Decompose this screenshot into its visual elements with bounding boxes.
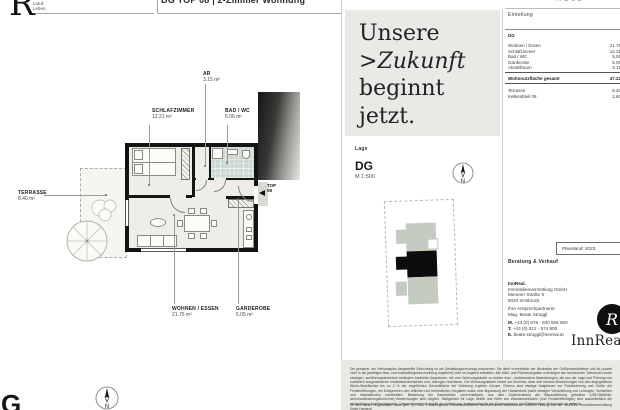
wall-bottom-a — [125, 248, 141, 252]
wall-bedroom-bottom-a — [129, 195, 170, 198]
chair — [200, 208, 207, 214]
chair — [177, 220, 183, 227]
table-rule-3 — [505, 83, 620, 84]
room-label-schlafzimmer: SCHLAFZIMMER 12.21 m² — [152, 108, 194, 120]
compass-icon-bottom: N — [93, 384, 121, 410]
svg-text:N: N — [461, 179, 465, 185]
shower — [212, 148, 223, 159]
wall-bedroom-ar — [192, 147, 195, 197]
chair — [188, 233, 195, 239]
divider-middle — [341, 0, 342, 360]
leader-terrasse — [44, 195, 106, 196]
page-title: DG TOP 08 | 2-Zimmer Wohnung — [161, 0, 339, 5]
slogan-panel: Unsere >Zukunft beginnt jetzt. — [345, 10, 500, 136]
siteplan-boundary — [384, 199, 458, 327]
disclaimer-band: Die gesamte, am Verkaufsplan dargestellt… — [341, 360, 620, 410]
svg-text:N: N — [105, 404, 109, 410]
shrub-icon — [90, 198, 120, 224]
contact-mobile: M. +43 (0) 676 - 840 505 660 — [508, 320, 568, 325]
pillow — [134, 164, 143, 174]
wall-hall-c — [226, 178, 254, 180]
lage-heading: Lage — [355, 146, 368, 152]
wardrobe-bedroom — [181, 148, 190, 180]
innreal-logo-icon: R — [597, 304, 620, 334]
disclaimer-paragraph-2: Es wird darauf hingewiesen, dass gem. § … — [350, 403, 612, 410]
table-total-row: Wohnnutzfläche gesamt47.22 — [508, 76, 620, 82]
expose-page: R Land. Leben. DG TOP 08 | 2-Zimmer Wohn… — [0, 0, 620, 410]
disclaimer-paragraph-1: Die gesamte, am Verkaufsplan dargestellt… — [350, 367, 612, 406]
stove — [246, 235, 252, 240]
table-row: Abstellraum3.15 — [508, 65, 620, 71]
coffee-table — [150, 218, 166, 227]
innreal-wordmark: InnReal — [571, 333, 620, 349]
wall-right-lower — [254, 204, 258, 252]
slogan-text: Unsere >Zukunft beginnt jetzt. — [359, 20, 466, 130]
titlebar-left-border — [157, 0, 158, 14]
wall-bottom-b — [186, 248, 258, 252]
brand-tagline: Land. Leben. — [33, 1, 47, 11]
planstand-text: Planstand: 2023 — [562, 246, 595, 251]
leader-garderobe — [238, 200, 239, 304]
planstand-box: Planstand: 2023 — [556, 242, 620, 255]
tree-icon — [64, 218, 110, 264]
room-label-ar: AR 3.15 m² — [203, 71, 220, 83]
chair — [200, 233, 207, 239]
lage-floor: DG — [355, 160, 373, 173]
entry-label: TOP 08 — [267, 183, 276, 193]
einteilung-heading: Einteilung — [508, 12, 533, 18]
siteplan-building-gray-bottom — [407, 276, 438, 304]
leader-bad — [227, 125, 228, 163]
titlebar-bottom-border — [157, 13, 341, 14]
wall-right-upper — [254, 143, 258, 186]
siteplan-building-gray-top-annex — [396, 229, 407, 243]
bed-divider — [132, 162, 176, 163]
chair — [211, 220, 217, 227]
contact-city: 6020 Innsbruck — [508, 298, 539, 303]
sales-heading: Beratung & Verkauf — [508, 259, 558, 265]
table-row: Kellerabteil 082.60 — [508, 94, 620, 100]
entry-arrow-icon — [259, 190, 265, 196]
lage-scale: M 1:500 — [355, 174, 375, 180]
slogan-line4: jetzt. — [359, 103, 466, 131]
compass-icon-lage: N — [450, 160, 476, 186]
siteplan-building-highlighted-annex — [396, 256, 408, 269]
terrace-door — [125, 200, 129, 226]
room-label-terrasse: TERRASSE 8.40 m² — [18, 190, 47, 202]
room-label-bad: BAD / WC 5.06 m² — [225, 108, 250, 120]
wall-left-upper — [125, 143, 129, 200]
leader-schlafzimmer — [149, 125, 150, 185]
chair — [188, 208, 195, 214]
dining-table — [184, 215, 210, 232]
siteplan-building-gray-bottom-annex — [396, 282, 407, 296]
brand-tagline-line2: Leben. — [33, 6, 47, 11]
stove — [246, 227, 252, 232]
contact-phone: T. +43 (0) 512 - 574 800 — [508, 326, 557, 331]
slogan-line1: Unsere — [359, 20, 466, 48]
pillow — [134, 150, 143, 160]
slogan-line3: beginnt — [359, 75, 466, 103]
adjacent-building-cut — [258, 92, 300, 180]
washbasin — [227, 149, 238, 155]
right-panel-top-rule — [505, 8, 620, 9]
contact-person: Mag. Beate Struggl — [508, 312, 547, 317]
table-rule-2 — [505, 72, 620, 73]
divider-right — [502, 9, 503, 360]
siteplan-building-highlighted — [407, 250, 438, 277]
brand-logo-letter: R — [9, 0, 35, 21]
table-group-row: DG — [508, 33, 620, 39]
kitchen-sink — [246, 214, 252, 220]
window-living — [141, 248, 186, 252]
sofa — [137, 235, 177, 247]
corner-letter: G — [1, 391, 21, 410]
siteplan-building-white — [427, 238, 438, 249]
contact-email: E. beate.struggl@innreal.at — [508, 332, 564, 337]
toilet — [242, 150, 250, 159]
table-rule-1 — [505, 29, 620, 30]
wall-ar-bath — [209, 147, 211, 178]
header-rule-left — [30, 13, 154, 14]
project-name-clipped: HOLZ — [556, 0, 584, 3]
wall-bedroom-bottom-b — [186, 195, 192, 198]
room-label-garderobe: GARDEROBE 5.05 m² — [236, 306, 270, 318]
leader-ar — [205, 84, 206, 166]
sofa-cushion-line — [163, 235, 164, 247]
leader-wohnen — [174, 216, 175, 304]
sofa-cushion-line — [150, 235, 151, 247]
room-label-wohnen: WOHNEN / ESSEN 21.75 m² — [172, 306, 219, 318]
slogan-line2: >Zukunft — [359, 48, 466, 76]
